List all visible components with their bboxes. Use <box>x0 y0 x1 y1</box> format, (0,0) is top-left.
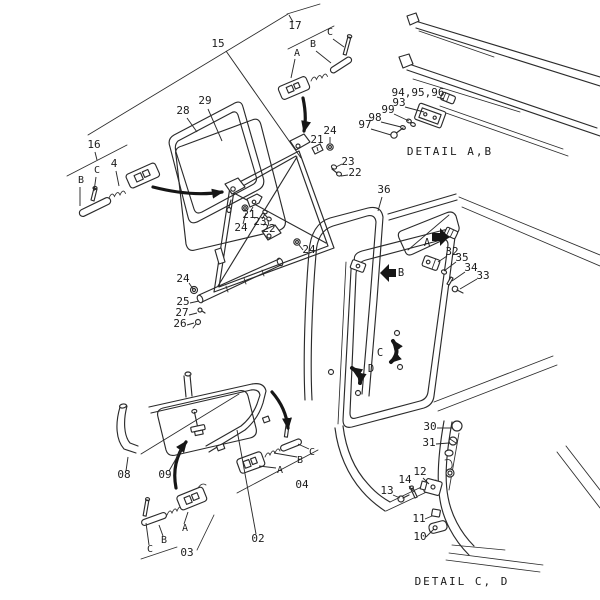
leader-line <box>189 313 197 315</box>
leader-line <box>95 152 97 160</box>
leader-line <box>378 197 382 211</box>
leader-line <box>187 323 194 325</box>
ref-letter-label: C <box>147 544 153 555</box>
part-number-label: 24 <box>234 221 248 234</box>
part-number-label: 16 <box>87 138 100 151</box>
detail-ab-inset <box>391 54 600 156</box>
latch-group-16 <box>78 162 160 217</box>
view-arrow-letter: A <box>424 237 431 249</box>
leader-line <box>341 175 348 176</box>
part-number-label: 09 <box>158 468 171 481</box>
spring <box>311 74 328 81</box>
part-number-label: 24 <box>302 243 316 256</box>
part-number-label: 29 <box>198 94 211 107</box>
ref-letter-label: A <box>294 48 300 59</box>
part-number-label: 21 <box>310 133 323 146</box>
part-number-label: 24 <box>323 124 337 137</box>
view-arrow-letter: B <box>398 267 404 279</box>
washer-35 <box>441 269 447 275</box>
leader-line <box>226 51 301 158</box>
part-number-label: 36 <box>377 183 390 196</box>
arrow-latch17-to-frame <box>303 98 305 131</box>
ref-letter-label: A <box>182 523 188 534</box>
exploded-parts-diagram: 1517ABC16BC42829242123222123222424242527… <box>0 0 600 600</box>
part-number-label: 17 <box>288 19 301 32</box>
spring <box>109 191 126 198</box>
part-number-label: 13 <box>380 484 393 497</box>
view-arrow-letter: D <box>368 363 374 375</box>
part-number-label: 15 <box>211 37 224 50</box>
leader-line <box>371 129 391 135</box>
part-number-label: 26 <box>173 317 186 330</box>
leader-line <box>187 118 197 132</box>
part-number-label: 30 <box>423 420 436 433</box>
part-number-label: 31 <box>422 436 435 449</box>
guide-rail-08 <box>117 403 138 453</box>
view-arrow-c <box>391 341 397 362</box>
leader-line <box>394 114 409 121</box>
arrow-to-stud09 <box>175 442 186 488</box>
ref-letter-label: B <box>297 455 303 466</box>
part-number-label: 03 <box>180 546 193 559</box>
part-number-label: 12 <box>413 465 426 478</box>
ref-letter-label: A <box>277 465 283 476</box>
arrow-to-rod04 <box>272 392 288 428</box>
ref-letter-label: B <box>78 175 84 186</box>
leader-line <box>146 523 149 545</box>
part-number-label: 08 <box>117 468 130 481</box>
part-number-label: 11 <box>412 512 425 525</box>
part-number-label: 10 <box>413 530 426 543</box>
ref-letter-label: C <box>309 447 315 458</box>
ref-letter-label: C <box>327 27 333 38</box>
bolt-13 <box>398 496 404 502</box>
clip-11 <box>431 509 440 517</box>
part-labels: 1517ABC16BC42829242123222123222424242527… <box>78 19 509 588</box>
part-number-label: 33 <box>476 269 489 282</box>
leader-line <box>116 171 119 186</box>
leader-line <box>190 301 199 303</box>
parts-diagram-page: 1517ABC16BC42829242123222123222424242527… <box>0 0 600 600</box>
leader-line <box>298 444 309 449</box>
part-number-label: 02 <box>251 532 264 545</box>
part-number-label: 22 <box>348 166 361 179</box>
part-number-label: 99 <box>381 103 394 116</box>
leader-line <box>316 51 331 63</box>
ref-letter-label: C <box>94 165 100 176</box>
view-arrow-d <box>352 368 360 383</box>
bracket-12 <box>420 477 443 496</box>
bolt-33 <box>452 286 458 292</box>
leader-line <box>425 516 432 519</box>
view-arrow-letter: C <box>377 347 383 359</box>
cab-frame <box>304 13 600 511</box>
stud-09 <box>187 408 206 436</box>
bolt-27 <box>198 308 202 312</box>
part-number-label: 22 <box>262 222 275 235</box>
ref-letter-label: B <box>310 39 316 50</box>
part-number-label: 04 <box>295 478 309 491</box>
leader-line <box>452 272 465 281</box>
leader-line <box>333 39 344 47</box>
bolt-97 <box>391 132 397 138</box>
detail-caption: DETAIL C, D <box>415 575 510 588</box>
bracket-32 <box>422 255 441 271</box>
leader-line <box>436 443 449 444</box>
cap-30 <box>452 421 462 431</box>
latch-group-04 <box>236 418 302 474</box>
ref-letter-label: B <box>161 535 167 546</box>
view-arrow-b <box>380 264 396 282</box>
leader-line <box>381 122 401 127</box>
part-number-label: 97 <box>358 118 371 131</box>
part-number-label: 14 <box>398 473 412 486</box>
detail-caption: DETAIL A,B <box>407 145 493 158</box>
leader-line <box>237 430 256 534</box>
latch-group-03 <box>141 484 208 526</box>
part-number-label: 4 <box>111 157 118 170</box>
frame-lock-handle <box>215 248 225 264</box>
leader-line <box>274 453 297 457</box>
part-number-label: 28 <box>176 104 189 117</box>
leader-line <box>460 279 477 289</box>
fastener-cluster-top <box>312 144 342 177</box>
leader-line <box>291 59 295 78</box>
part-number-label: 24 <box>176 272 190 285</box>
